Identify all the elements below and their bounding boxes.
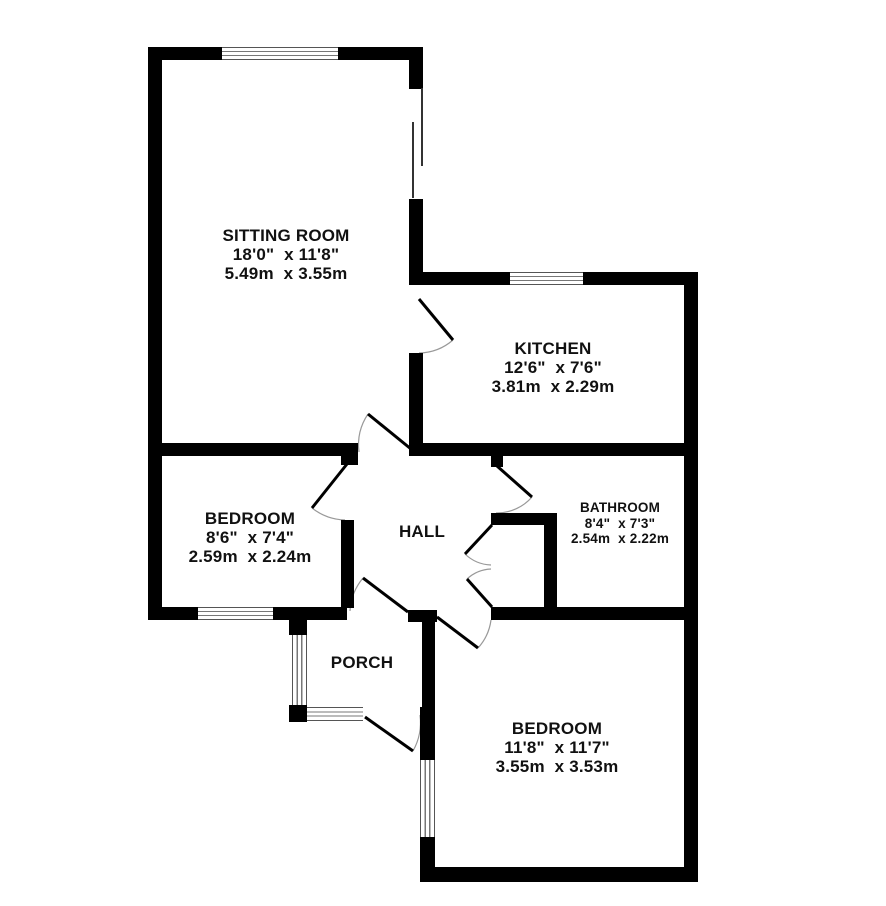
room-dimensions: 5.49m x 3.55m: [222, 264, 349, 283]
room-name: BATHROOM: [571, 500, 669, 516]
room-dimensions: 3.55m x 3.53m: [496, 757, 619, 776]
window-symbol: [222, 47, 338, 60]
wall-segment: [289, 620, 307, 635]
bedroom-1-door: [312, 464, 347, 520]
room-name: HALL: [399, 522, 445, 541]
wall-segment: [684, 272, 698, 882]
wall-segment: [420, 867, 698, 882]
room-name: PORCH: [331, 653, 393, 672]
room-dimensions: 8'4" x 7'3": [571, 516, 669, 532]
wall-segment: [409, 47, 423, 89]
room-dimensions: 8'6" x 7'4": [189, 528, 312, 547]
wall-segment: [341, 520, 354, 608]
room-label-bedroom-1: BEDROOM8'6" x 7'4"2.59m x 2.24m: [189, 509, 312, 566]
room-label-porch: PORCH: [331, 653, 393, 672]
wall-segment: [420, 707, 435, 760]
window-symbol: [292, 635, 307, 705]
wall-segment: [273, 607, 347, 620]
wall-segment: [491, 607, 684, 620]
wall-segment: [148, 47, 162, 620]
wall-segment: [289, 705, 307, 722]
wall-segment: [148, 607, 198, 620]
room-label-kitchen: KITCHEN12'6" x 7'6"3.81m x 2.29m: [492, 339, 615, 396]
room-dimensions: 2.54m x 2.22m: [571, 531, 669, 547]
room-label-bathroom: BATHROOM8'4" x 7'3"2.54m x 2.22m: [571, 500, 669, 547]
cupboard-door-bottom: [467, 569, 492, 607]
room-name: BEDROOM: [189, 509, 312, 528]
wall-segment: [148, 443, 358, 456]
room-dimensions: 3.81m x 2.29m: [492, 377, 615, 396]
sliding-door-panel: [421, 88, 423, 166]
bathroom-door: [496, 466, 532, 513]
room-dimensions: 18'0" x 11'8": [222, 245, 349, 264]
window-symbol: [307, 707, 363, 721]
porch-inner-door: [350, 578, 408, 612]
wall-segment: [420, 837, 435, 868]
wall-segment: [491, 455, 503, 467]
window-symbol: [198, 607, 273, 620]
room-label-sitting-room: SITTING ROOM18'0" x 11'8"5.49m x 3.55m: [222, 226, 349, 283]
room-dimensions: 12'6" x 7'6": [492, 358, 615, 377]
cupboard-door-top: [465, 525, 492, 565]
room-name: KITCHEN: [492, 339, 615, 358]
room-dimensions: 11'8" x 11'7": [496, 738, 619, 757]
floorplan-canvas: SITTING ROOM18'0" x 11'8"5.49m x 3.55mKI…: [0, 0, 886, 906]
room-label-bedroom-2: BEDROOM11'8" x 11'7"3.55m x 3.53m: [496, 719, 619, 776]
bedroom-2-door: [437, 617, 491, 648]
room-name: BEDROOM: [496, 719, 619, 738]
wall-segment: [341, 443, 358, 465]
room-dimensions: 2.59m x 2.24m: [189, 547, 312, 566]
porch-entrance-door: [365, 715, 420, 751]
wall-segment: [338, 47, 419, 60]
sitting-room-door: [359, 414, 411, 452]
room-name: SITTING ROOM: [222, 226, 349, 245]
wall-segment: [422, 620, 435, 707]
wall-segment: [583, 272, 698, 285]
window-symbol: [510, 272, 583, 285]
kitchen-door: [419, 299, 453, 353]
wall-segment: [419, 272, 510, 285]
wall-segment: [409, 443, 684, 456]
sliding-door-panel: [412, 122, 414, 198]
wall-segment: [544, 513, 557, 608]
wall-segment: [409, 353, 423, 455]
window-symbol: [420, 760, 435, 837]
room-label-hall: HALL: [399, 522, 445, 541]
